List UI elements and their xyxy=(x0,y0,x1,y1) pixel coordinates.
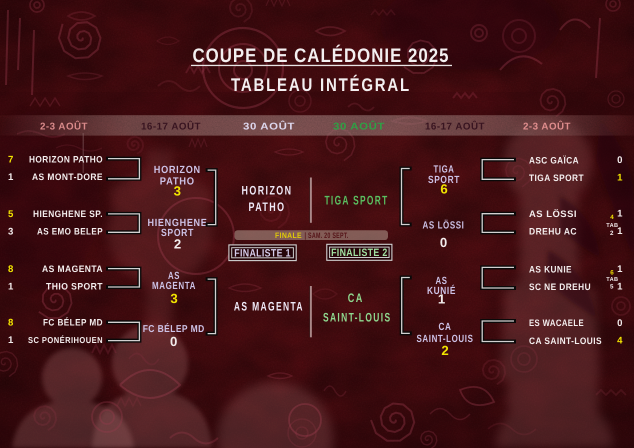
svg-text:30 AOÛT: 30 AOÛT xyxy=(333,121,385,133)
svg-text:2-3 AOÛT: 2-3 AOÛT xyxy=(523,121,571,133)
svg-text:2: 2 xyxy=(441,343,448,358)
svg-text:0: 0 xyxy=(440,235,447,250)
svg-text:1: 1 xyxy=(8,172,14,183)
svg-text:6: 6 xyxy=(440,182,447,197)
svg-text:FINALE: FINALE xyxy=(275,231,302,240)
svg-text:2: 2 xyxy=(610,230,614,237)
svg-text:ASC GAÏCA: ASC GAÏCA xyxy=(529,155,579,166)
svg-text:1: 1 xyxy=(617,282,623,293)
svg-text:5: 5 xyxy=(610,284,614,291)
svg-text:TAB: TAB xyxy=(606,277,618,283)
svg-text:1: 1 xyxy=(8,281,14,292)
svg-text:1: 1 xyxy=(617,264,623,275)
svg-text:0: 0 xyxy=(170,334,177,349)
svg-text:FC BÉLEP MD: FC BÉLEP MD xyxy=(43,317,103,328)
svg-text:AS MAGENTA: AS MAGENTA xyxy=(234,300,304,314)
svg-text:3: 3 xyxy=(174,184,181,199)
svg-text:AS KUNIE: AS KUNIE xyxy=(529,264,572,275)
svg-text:DREHU AC: DREHU AC xyxy=(529,226,577,237)
svg-text:AS MAGENTA: AS MAGENTA xyxy=(42,263,103,274)
svg-text:16-17 AOÛT: 16-17 AOÛT xyxy=(425,121,485,133)
svg-text:CA SAINT-LOUIS: CA SAINT-LOUIS xyxy=(529,335,602,346)
svg-text:COUPE DE CALÉDONIE 2025: COUPE DE CALÉDONIE 2025 xyxy=(193,44,450,67)
svg-text:CA: CA xyxy=(439,322,452,333)
svg-text:5: 5 xyxy=(8,209,14,220)
svg-text:8: 8 xyxy=(8,318,14,329)
svg-text:3: 3 xyxy=(170,291,177,306)
svg-text:0: 0 xyxy=(617,318,622,329)
svg-text:7: 7 xyxy=(8,154,13,165)
svg-text:TAB: TAB xyxy=(606,223,618,229)
svg-text:HORIZON: HORIZON xyxy=(154,165,201,176)
svg-text:16-17 AOÛT: 16-17 AOÛT xyxy=(141,121,201,133)
svg-text:30 AOÛT: 30 AOÛT xyxy=(243,121,295,133)
svg-text:AS LÖSSI: AS LÖSSI xyxy=(529,208,577,219)
svg-text:0: 0 xyxy=(617,155,622,166)
svg-text:SC PONÉRIHOUEN: SC PONÉRIHOUEN xyxy=(28,335,103,345)
svg-text:HORIZON PATHO: HORIZON PATHO xyxy=(29,153,103,164)
svg-text:| SAM. 20 SEPT.: | SAM. 20 SEPT. xyxy=(305,231,349,240)
svg-text:1: 1 xyxy=(438,292,445,307)
svg-text:HORIZON: HORIZON xyxy=(242,184,293,198)
svg-text:TABLEAU INTÉGRAL: TABLEAU INTÉGRAL xyxy=(231,74,411,95)
svg-text:1: 1 xyxy=(8,335,14,346)
svg-text:1: 1 xyxy=(617,209,623,220)
svg-text:2: 2 xyxy=(174,237,181,252)
svg-text:2-3 AOÛT: 2-3 AOÛT xyxy=(40,121,88,133)
svg-text:TIGA SPORT: TIGA SPORT xyxy=(325,194,389,208)
svg-text:ES WACAELE: ES WACAELE xyxy=(529,317,584,328)
svg-text:4: 4 xyxy=(610,214,614,221)
svg-text:PATHO: PATHO xyxy=(249,200,286,214)
svg-text:1: 1 xyxy=(617,173,623,184)
svg-text:THIO SPORT: THIO SPORT xyxy=(46,280,103,291)
svg-text:AS MONT-DORE: AS MONT-DORE xyxy=(32,171,103,182)
svg-text:HIENGHENE SP.: HIENGHENE SP. xyxy=(33,208,103,219)
svg-text:SAINT-LOUIS: SAINT-LOUIS xyxy=(323,310,392,324)
svg-text:FINALISTE 2: FINALISTE 2 xyxy=(331,247,388,259)
svg-text:AS LÖSSI: AS LÖSSI xyxy=(423,220,465,232)
svg-text:8: 8 xyxy=(8,264,14,275)
svg-text:4: 4 xyxy=(617,336,623,347)
svg-text:TIGA: TIGA xyxy=(434,164,455,175)
svg-text:FINALISTE 1: FINALISTE 1 xyxy=(234,247,291,259)
svg-text:SC NE DREHU: SC NE DREHU xyxy=(529,281,591,292)
svg-text:6: 6 xyxy=(610,269,614,276)
svg-text:CA: CA xyxy=(348,291,364,305)
svg-text:3: 3 xyxy=(8,227,13,238)
svg-text:AS EMO BELEP: AS EMO BELEP xyxy=(37,226,103,237)
svg-text:TIGA SPORT: TIGA SPORT xyxy=(529,172,584,183)
